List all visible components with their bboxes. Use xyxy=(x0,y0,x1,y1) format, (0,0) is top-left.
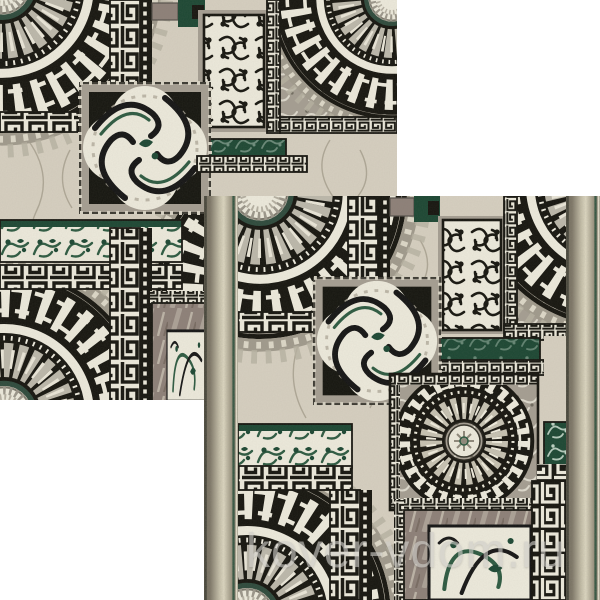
carpet-collage xyxy=(0,0,600,600)
photo-grain xyxy=(204,196,600,600)
carpet-product-photo: kover-vdom.ru xyxy=(0,0,600,600)
